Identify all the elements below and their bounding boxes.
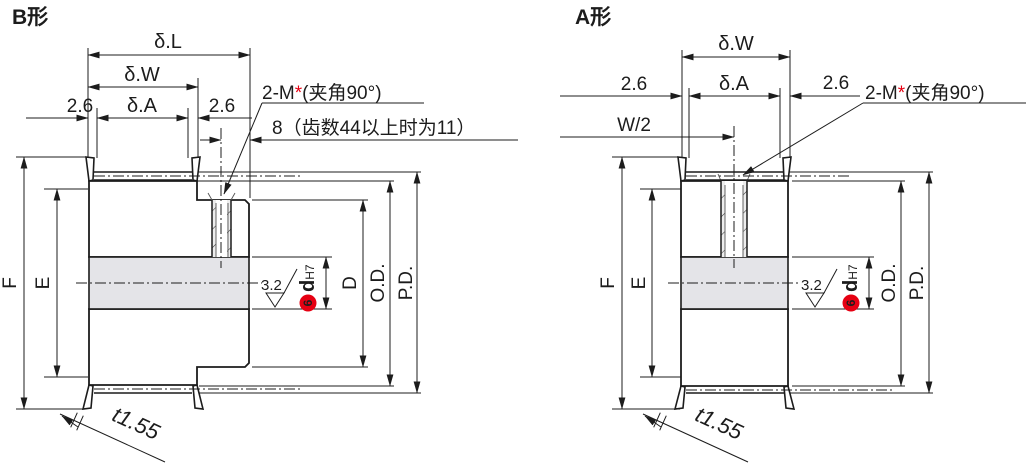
b-footnote-number: 6 <box>301 299 315 306</box>
b-dim-delta-w: δ.W <box>124 64 160 86</box>
a-dim-f: F <box>598 277 619 289</box>
b-type-title: B形 <box>12 6 48 29</box>
technical-drawing-page: t1.55 3.2 6 dH7 B形 δ.L δ.W δ.A 2.6 2.6 2… <box>0 0 1028 470</box>
a-dim-half-width: W/2 <box>617 115 651 136</box>
a-dim-pd: P.D. <box>907 266 928 301</box>
a-dim-offset-left: 2.6 <box>621 74 647 95</box>
b-set-screw-note: 2-M*(夹角90°) <box>262 82 382 104</box>
a-dim-offset-right: 2.6 <box>823 73 849 94</box>
a-surface-finish-symbol: 3.2 <box>801 269 837 307</box>
svg-text:dH7: dH7 <box>297 264 319 292</box>
pulley-drawing-svg: t1.55 3.2 6 dH7 B形 δ.L δ.W δ.A 2.6 2.6 2… <box>0 0 1028 470</box>
a-dimension-lines <box>560 57 1026 409</box>
b-dim-delta-a: δ.A <box>127 95 158 117</box>
a-flange-thickness-callout: t1.55 <box>643 402 748 462</box>
b-type-diagram: t1.55 3.2 6 dH7 B形 δ.L δ.W δ.A 2.6 2.6 2… <box>0 6 518 462</box>
a-bore-spec: 6 dH7 <box>840 264 862 311</box>
b-dim-e: E <box>33 277 54 290</box>
a-dim-delta-w: δ.W <box>718 33 754 55</box>
b-dim-d: D <box>340 276 361 290</box>
b-surface-finish-value: 3.2 <box>261 277 282 294</box>
b-flange-thickness-callout: t1.55 <box>60 402 165 462</box>
b-surface-finish-symbol: 3.2 <box>261 269 297 307</box>
a-dim-e: E <box>629 277 650 290</box>
b-bore-spec: 6 dH7 <box>297 264 319 311</box>
a-set-screw-note: 2-M*(夹角90°) <box>865 82 985 104</box>
a-surface-finish-value: 3.2 <box>801 277 822 294</box>
b-dim-pd: P.D. <box>396 266 417 301</box>
a-footnote-number: 6 <box>844 299 858 306</box>
b-flange-thickness-label: t1.55 <box>109 402 165 445</box>
svg-text:dH7: dH7 <box>840 264 862 292</box>
a-dim-delta-a: δ.A <box>719 73 750 95</box>
a-type-title: A形 <box>575 6 611 29</box>
b-screw-depth-note: 8（齿数44以上时为11） <box>272 117 475 139</box>
b-dimension-lines <box>24 55 518 409</box>
a-dim-od: O.D. <box>879 263 900 302</box>
b-dim-offset-right: 2.6 <box>209 96 235 117</box>
b-dim-od: O.D. <box>368 263 389 302</box>
a-type-diagram: t1.55 3.2 6 dH7 A形 δ.W δ.A 2.6 2.6 W/2 2… <box>560 6 1026 462</box>
b-dim-f: F <box>0 277 21 289</box>
a-flange-thickness-label: t1.55 <box>692 402 748 445</box>
b-dim-offset-left: 2.6 <box>67 96 93 117</box>
b-dim-delta-l: δ.L <box>154 31 182 53</box>
